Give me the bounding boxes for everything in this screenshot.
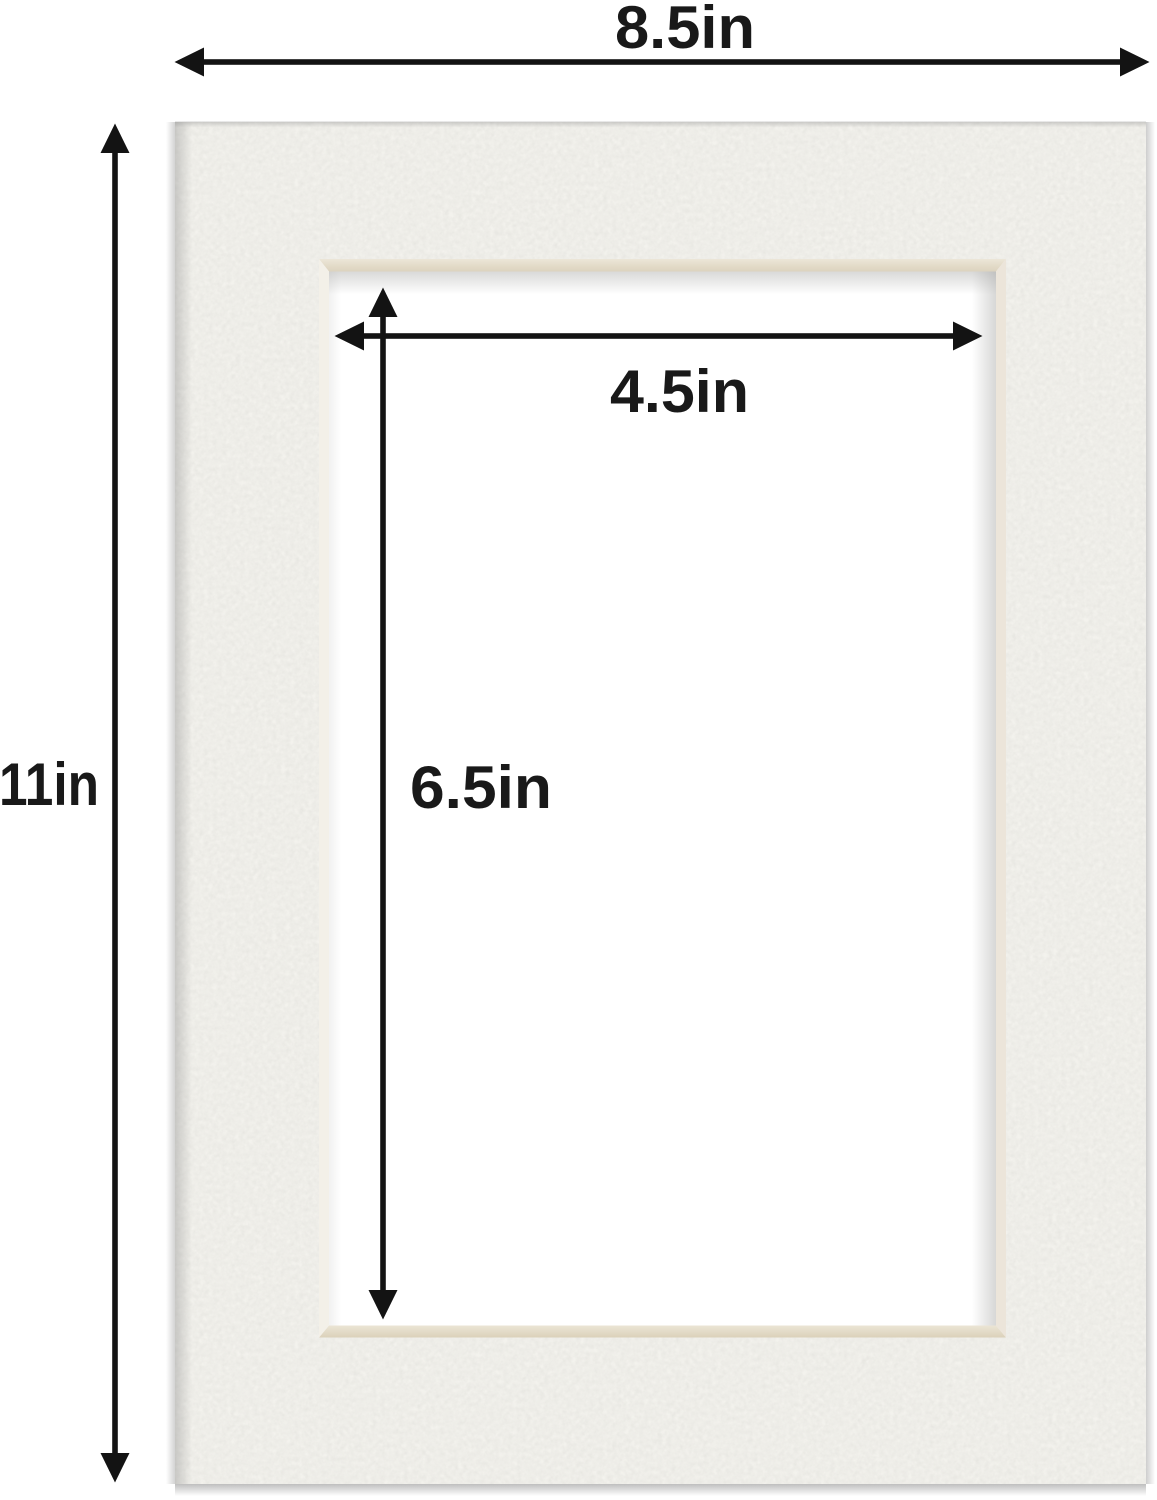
svg-text:6.5in: 6.5in [410,754,552,821]
svg-text:8.5in: 8.5in [615,0,755,61]
svg-text:11in: 11in [0,751,99,818]
svg-text:4.5in: 4.5in [610,358,749,425]
